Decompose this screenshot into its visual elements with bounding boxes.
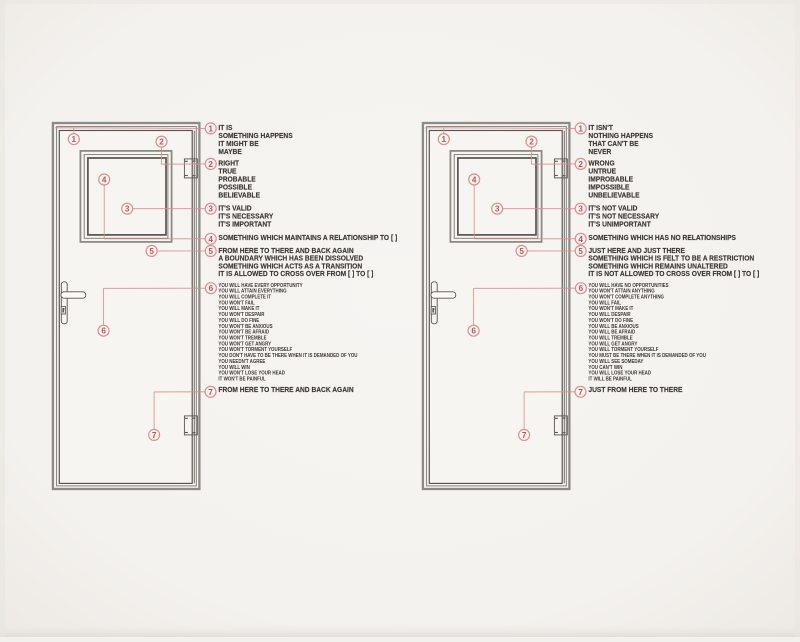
- svg-text:YOU WILL DESPAIR: YOU WILL DESPAIR: [588, 312, 631, 318]
- svg-text:YOU WON'T ATTAIN ANYTHING: YOU WON'T ATTAIN ANYTHING: [588, 288, 655, 294]
- svg-text:YOU WON'T FAIL: YOU WON'T FAIL: [218, 300, 254, 306]
- svg-text:YOU WILL BE AFRAID: YOU WILL BE AFRAID: [588, 329, 635, 335]
- svg-text:IT IS ALLOWED TO CROSS OVER FR: IT IS ALLOWED TO CROSS OVER FROM [ ] TO …: [218, 271, 373, 278]
- svg-text:SOMETHING WHICH IS FELT TO BE: SOMETHING WHICH IS FELT TO BE A RESTRICT…: [588, 255, 754, 262]
- svg-text:YOU WON'T BE AFRAID: YOU WON'T BE AFRAID: [218, 329, 269, 335]
- svg-text:2: 2: [529, 138, 534, 147]
- svg-text:5: 5: [519, 247, 524, 256]
- svg-text:IT ISN'T: IT ISN'T: [588, 125, 613, 132]
- svg-text:YOU WON'T COMPLETE ANYTHING: YOU WON'T COMPLETE ANYTHING: [588, 294, 664, 300]
- svg-text:5: 5: [149, 247, 154, 256]
- svg-text:YOU WILL HAVE EVERY OPPORTUNIT: YOU WILL HAVE EVERY OPPORTUNITY: [218, 283, 303, 289]
- svg-text:POSSIBLE: POSSIBLE: [218, 184, 252, 191]
- svg-text:YOU CAN'T WIN: YOU CAN'T WIN: [588, 365, 623, 371]
- svg-text:YOU WILL FAIL: YOU WILL FAIL: [588, 300, 621, 306]
- svg-text:SOMETHING WHICH REMAINS UNALTE: SOMETHING WHICH REMAINS UNALTERED: [588, 263, 727, 270]
- svg-text:WRONG: WRONG: [588, 160, 615, 167]
- svg-text:YOU WON'T DO FINE: YOU WON'T DO FINE: [588, 318, 633, 324]
- svg-text:YOU WILL LOSE YOUR HEAD: YOU WILL LOSE YOUR HEAD: [588, 370, 651, 376]
- svg-text:3: 3: [125, 205, 130, 214]
- svg-text:YOU NEEDN'T AGREE: YOU NEEDN'T AGREE: [218, 359, 265, 365]
- svg-text:IT'S NECESSARY: IT'S NECESSARY: [218, 213, 273, 220]
- svg-text:IT WILL BE PAINFUL: IT WILL BE PAINFUL: [588, 376, 632, 382]
- svg-text:RIGHT: RIGHT: [218, 160, 239, 167]
- svg-text:2: 2: [578, 160, 583, 169]
- svg-text:IT'S UNIMPORTANT: IT'S UNIMPORTANT: [588, 221, 651, 228]
- svg-text:IT'S NOT NECESSARY: IT'S NOT NECESSARY: [588, 213, 659, 220]
- svg-text:SOMETHING WHICH MAINTAINS A RE: SOMETHING WHICH MAINTAINS A RELATIONSHIP…: [218, 235, 397, 242]
- svg-text:YOU WON'T GET ANGRY: YOU WON'T GET ANGRY: [218, 341, 272, 347]
- svg-text:YOU WILL ATTAIN EVERYTHING: YOU WILL ATTAIN EVERYTHING: [218, 288, 286, 294]
- svg-text:YOU WILL WIN: YOU WILL WIN: [218, 365, 250, 371]
- svg-text:6: 6: [579, 284, 584, 293]
- svg-text:YOU WILL TORMENT YOURSELF: YOU WILL TORMENT YOURSELF: [588, 347, 658, 353]
- svg-text:YOU DON'T HAVE TO BE THERE WHE: YOU DON'T HAVE TO BE THERE WHEN IT IS DE…: [218, 353, 358, 359]
- svg-text:IT WON'T BE PAINFUL: IT WON'T BE PAINFUL: [218, 376, 265, 382]
- svg-text:IT IS NOT ALLOWED TO CROSS OVE: IT IS NOT ALLOWED TO CROSS OVER FROM [ ]…: [588, 271, 759, 278]
- svg-text:MAYBE: MAYBE: [218, 149, 242, 156]
- svg-text:YOU WON'T BE ANXIOUS: YOU WON'T BE ANXIOUS: [218, 324, 272, 330]
- svg-text:IT'S VALID: IT'S VALID: [218, 205, 251, 212]
- svg-text:3: 3: [578, 205, 583, 214]
- svg-text:1: 1: [442, 135, 447, 144]
- svg-text:IT'S NOT VALID: IT'S NOT VALID: [588, 205, 637, 212]
- svg-text:1: 1: [578, 124, 583, 133]
- svg-text:3: 3: [495, 205, 500, 214]
- svg-text:NEVER: NEVER: [588, 149, 611, 156]
- svg-text:YOU WILL MAKE IT: YOU WILL MAKE IT: [218, 306, 259, 312]
- svg-text:1: 1: [72, 135, 77, 144]
- svg-text:IT'S IMPORTANT: IT'S IMPORTANT: [218, 221, 271, 228]
- svg-text:FROM HERE TO THERE AND BACK AG: FROM HERE TO THERE AND BACK AGAIN: [218, 387, 353, 394]
- svg-text:5: 5: [208, 247, 213, 256]
- svg-text:YOU WILL DO FINE: YOU WILL DO FINE: [218, 318, 259, 324]
- svg-text:NOTHING HAPPENS: NOTHING HAPPENS: [588, 133, 653, 140]
- svg-text:3: 3: [208, 205, 213, 214]
- svg-text:SOMETHING WHICH ACTS AS A TRAN: SOMETHING WHICH ACTS AS A TRANSITION: [218, 263, 362, 270]
- svg-text:UNTRUE: UNTRUE: [588, 168, 616, 175]
- svg-text:6: 6: [209, 284, 214, 293]
- svg-text:IMPOSSIBLE: IMPOSSIBLE: [588, 184, 629, 191]
- svg-text:4: 4: [472, 175, 477, 184]
- svg-text:TRUE: TRUE: [218, 168, 236, 175]
- svg-text:UNBELIEVABLE: UNBELIEVABLE: [588, 192, 639, 199]
- svg-text:YOU WON'T LOSE YOUR HEAD: YOU WON'T LOSE YOUR HEAD: [218, 370, 285, 376]
- svg-text:A BOUNDARY WHICH HAS BEEN DISS: A BOUNDARY WHICH HAS BEEN DISSOLVED: [218, 255, 363, 262]
- svg-text:7: 7: [152, 431, 157, 440]
- svg-text:YOU WON'T MAKE IT: YOU WON'T MAKE IT: [588, 306, 633, 312]
- svg-text:7: 7: [522, 431, 527, 440]
- svg-text:YOU WON'T TORMENT YOURSELF: YOU WON'T TORMENT YOURSELF: [218, 347, 292, 353]
- svg-text:THAT CAN'T BE: THAT CAN'T BE: [588, 141, 638, 148]
- svg-text:JUST HERE AND JUST THERE: JUST HERE AND JUST THERE: [588, 248, 685, 255]
- svg-text:BELIEVABLE: BELIEVABLE: [218, 192, 260, 199]
- svg-text:PROBABLE: PROBABLE: [218, 176, 256, 183]
- svg-text:IT MIGHT BE: IT MIGHT BE: [218, 141, 259, 148]
- svg-text:YOU WILL COMPLETE IT: YOU WILL COMPLETE IT: [218, 294, 271, 300]
- svg-text:YOU WILL BE ANXIOUS: YOU WILL BE ANXIOUS: [588, 324, 638, 330]
- svg-text:2: 2: [208, 160, 213, 169]
- svg-text:7: 7: [578, 388, 583, 397]
- svg-text:6: 6: [101, 327, 106, 336]
- svg-text:YOU MUST BE THERE WHEN IT IS D: YOU MUST BE THERE WHEN IT IS DEMANDED OF…: [588, 353, 706, 359]
- svg-text:IMPROBABLE: IMPROBABLE: [588, 176, 633, 183]
- svg-text:IT IS: IT IS: [218, 125, 232, 132]
- svg-text:6: 6: [471, 327, 476, 336]
- svg-text:YOU WON'T DESPAIR: YOU WON'T DESPAIR: [218, 312, 265, 318]
- svg-text:YOU WILL SEE SOMEDAY: YOU WILL SEE SOMEDAY: [588, 359, 644, 365]
- svg-text:YOU WILL GET ANGRY: YOU WILL GET ANGRY: [588, 341, 638, 347]
- svg-text:7: 7: [208, 388, 213, 397]
- svg-text:FROM HERE TO THERE AND BACK AG: FROM HERE TO THERE AND BACK AGAIN: [218, 248, 353, 255]
- svg-text:1: 1: [208, 124, 213, 133]
- svg-text:4: 4: [578, 235, 583, 244]
- svg-text:SOMETHING HAPPENS: SOMETHING HAPPENS: [218, 133, 293, 140]
- svg-text:YOU WON'T TREMBLE: YOU WON'T TREMBLE: [218, 335, 266, 341]
- svg-text:2: 2: [159, 138, 164, 147]
- svg-text:5: 5: [578, 247, 583, 256]
- svg-text:4: 4: [102, 175, 107, 184]
- svg-text:JUST FROM HERE TO THERE: JUST FROM HERE TO THERE: [588, 387, 682, 394]
- svg-text:YOU WILL HAVE NO OPPORTUNITIES: YOU WILL HAVE NO OPPORTUNITIES: [588, 283, 668, 289]
- svg-text:SOMETHING WHICH HAS NO RELATIO: SOMETHING WHICH HAS NO RELATIONSHIPS: [588, 235, 736, 242]
- svg-text:YOU WILL TREMBLE: YOU WILL TREMBLE: [588, 335, 632, 341]
- svg-text:4: 4: [208, 235, 213, 244]
